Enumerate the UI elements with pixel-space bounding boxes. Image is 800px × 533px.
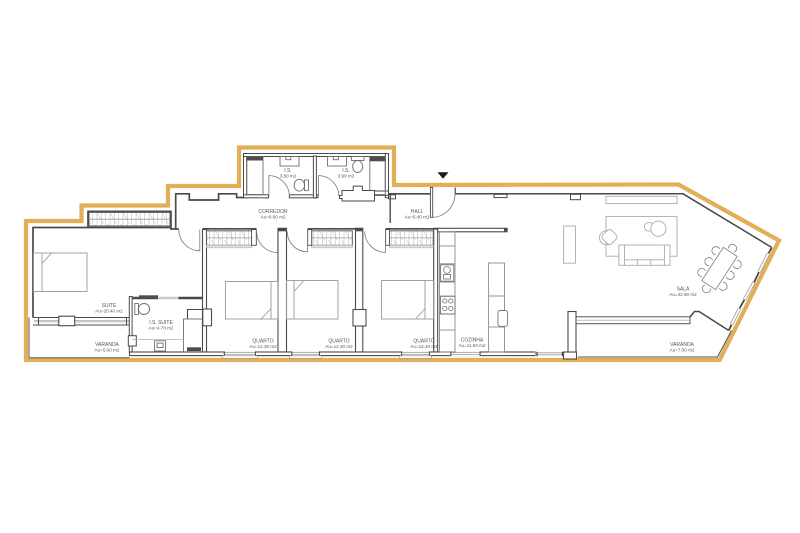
svg-text:Au=20.40 m2: Au=20.40 m2 xyxy=(95,309,123,314)
svg-text:Au=4.70 m2: Au=4.70 m2 xyxy=(149,326,174,331)
svg-text:Au=42.60 m2: Au=42.60 m2 xyxy=(669,292,697,297)
svg-text:3.80 m2: 3.80 m2 xyxy=(280,174,297,179)
svg-text:Au=8.90 m2: Au=8.90 m2 xyxy=(261,215,286,220)
svg-text:Au=11.50 m2: Au=11.50 m2 xyxy=(458,343,486,348)
svg-text:Au=5.00 m2: Au=5.00 m2 xyxy=(95,348,120,353)
svg-text:Au=12.30 m2: Au=12.30 m2 xyxy=(325,344,353,349)
svg-text:Au=7.00 m2: Au=7.00 m2 xyxy=(670,348,695,353)
svg-text:Au=12.30 m2: Au=12.30 m2 xyxy=(249,344,277,349)
svg-text:3.90 m2: 3.90 m2 xyxy=(338,174,355,179)
svg-text:Au=5.40 m2: Au=5.40 m2 xyxy=(405,215,430,220)
svg-text:Au=12.40 m2: Au=12.40 m2 xyxy=(410,344,438,349)
